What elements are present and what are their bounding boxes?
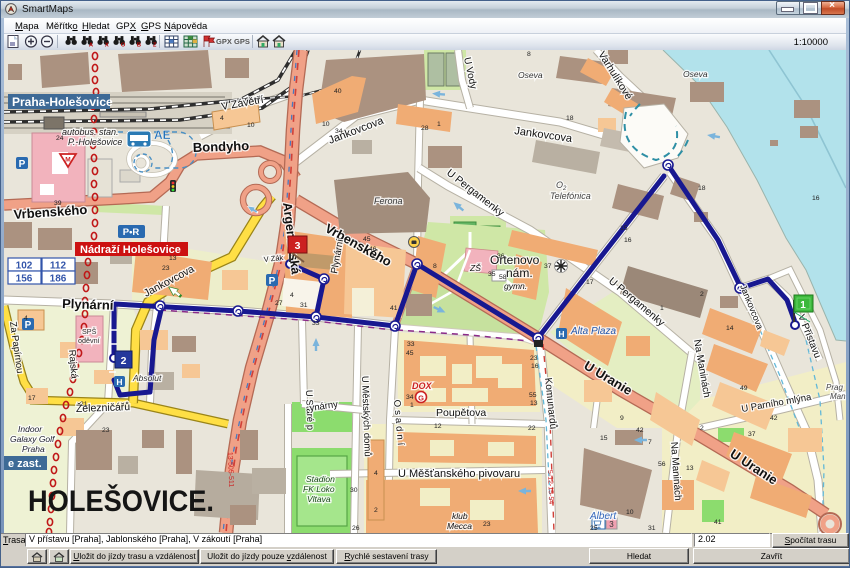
svg-text:23: 23 <box>102 427 110 434</box>
svg-text:DOX: DOX <box>412 381 433 391</box>
svg-text:4: 4 <box>24 315 28 322</box>
svg-text:2: 2 <box>374 507 378 514</box>
svg-text:SPŠ: SPŠ <box>82 327 97 336</box>
svg-text:8: 8 <box>433 263 437 270</box>
svg-text:Z: Z <box>153 43 157 49</box>
svg-text:58: 58 <box>499 274 507 281</box>
svg-text:35: 35 <box>488 271 496 278</box>
svg-text:Alta Plaza: Alta Plaza <box>570 326 616 337</box>
svg-text:Vltava: Vltava <box>307 494 331 504</box>
svg-text:18: 18 <box>566 115 574 122</box>
svg-text:P.-Holešovice: P.-Holešovice <box>68 137 122 147</box>
svg-text:nám.: nám. <box>506 266 533 280</box>
svg-text:3: 3 <box>295 240 301 252</box>
svg-text:GPS: GPS <box>234 37 250 46</box>
svg-text:Poupětova: Poupětova <box>436 407 486 419</box>
svg-text:7: 7 <box>648 439 652 446</box>
svg-text:1: 1 <box>437 121 441 128</box>
svg-text:Absolut: Absolut <box>132 373 162 383</box>
svg-text:1: 1 <box>410 402 414 409</box>
svg-text:Ferona: Ferona <box>374 196 403 206</box>
svg-text:Mecca: Mecca <box>447 521 472 531</box>
svg-text:13: 13 <box>169 255 177 262</box>
svg-text:25: 25 <box>590 525 598 532</box>
svg-text:GPX: GPX <box>216 37 232 46</box>
svg-text:Galaxy Golf: Galaxy Golf <box>10 434 56 444</box>
svg-text:H: H <box>558 329 564 339</box>
svg-text:45: 45 <box>406 350 414 357</box>
svg-text:17: 17 <box>586 279 594 286</box>
svg-text:34: 34 <box>406 394 414 401</box>
svg-text:12: 12 <box>434 423 442 430</box>
svg-text:15: 15 <box>620 225 628 232</box>
svg-text:4: 4 <box>374 470 378 477</box>
svg-text:22: 22 <box>528 425 536 432</box>
svg-text:H: H <box>116 377 122 387</box>
svg-text:31: 31 <box>300 302 308 309</box>
svg-text:10: 10 <box>322 121 330 128</box>
svg-text:Prag: Prag <box>826 383 843 392</box>
svg-text:55: 55 <box>529 392 537 399</box>
svg-text:31: 31 <box>648 525 656 532</box>
svg-text:Plynární: Plynární <box>62 296 114 313</box>
svg-text:G: G <box>418 394 424 403</box>
svg-text:autobus. stan.: autobus. stan. <box>62 127 119 137</box>
svg-text:2: 2 <box>700 425 704 432</box>
svg-text:Praha-Holešovice: Praha-Holešovice <box>12 95 113 109</box>
svg-text:56: 56 <box>658 461 666 468</box>
svg-text:17: 17 <box>28 395 36 402</box>
svg-text:Oseva: Oseva <box>518 70 543 80</box>
svg-text:34: 34 <box>335 128 343 135</box>
svg-text:4: 4 <box>220 115 224 122</box>
svg-text:Bondyho: Bondyho <box>193 138 250 155</box>
svg-text:klub: klub <box>452 511 468 521</box>
svg-text:156: 156 <box>16 274 33 285</box>
svg-text:42: 42 <box>636 427 644 434</box>
svg-text:186: 186 <box>50 274 67 285</box>
svg-text:HOLEŠOVICE.: HOLEŠOVICE. <box>28 484 214 518</box>
svg-text:41: 41 <box>714 519 722 526</box>
svg-text:41: 41 <box>390 305 398 312</box>
svg-text:4: 4 <box>290 292 294 299</box>
svg-text:AE: AE <box>154 128 171 142</box>
svg-text:e zast.: e zast. <box>8 458 42 470</box>
svg-text:13: 13 <box>530 400 538 407</box>
svg-text:30: 30 <box>350 487 358 494</box>
svg-text:10: 10 <box>247 122 255 129</box>
svg-text:A: A <box>89 43 93 49</box>
svg-text:B: B <box>137 43 141 49</box>
svg-text:Indoor: Indoor <box>18 424 43 434</box>
svg-text:gymn.: gymn. <box>504 281 527 291</box>
svg-text:M: M <box>65 157 70 164</box>
svg-text:37: 37 <box>544 263 552 270</box>
svg-text:13-505-511: 13-505-511 <box>226 452 234 488</box>
svg-text:112: 112 <box>50 261 67 272</box>
svg-text:18: 18 <box>698 185 706 192</box>
svg-text:21: 21 <box>80 401 88 408</box>
svg-text:37: 37 <box>748 431 756 438</box>
svg-text:102: 102 <box>16 261 33 272</box>
svg-text:49: 49 <box>740 385 748 392</box>
svg-text:45: 45 <box>363 236 371 243</box>
svg-text:23: 23 <box>530 355 538 362</box>
svg-text:40: 40 <box>334 88 342 95</box>
svg-text:9: 9 <box>620 415 624 422</box>
svg-text:Praha: Praha <box>22 444 45 454</box>
svg-text:5-12-15-54: 5-12-15-54 <box>546 470 554 505</box>
svg-text:23: 23 <box>162 265 170 272</box>
svg-text:P: P <box>269 276 276 287</box>
svg-text:13: 13 <box>686 465 694 472</box>
svg-text:46: 46 <box>369 246 377 253</box>
svg-text:27: 27 <box>275 300 283 307</box>
svg-text:16: 16 <box>812 195 820 202</box>
svg-text:42: 42 <box>770 415 778 422</box>
svg-text:oděvní: oděvní <box>78 336 100 345</box>
svg-text:Nádraží Holešovice: Nádraží Holešovice <box>80 244 181 256</box>
svg-text:36: 36 <box>497 253 505 260</box>
svg-text:2: 2 <box>121 355 127 367</box>
svg-text:P•R: P•R <box>123 227 140 238</box>
svg-text:8: 8 <box>527 51 531 58</box>
svg-text:Man: Man <box>830 392 846 401</box>
svg-text:FK Loko: FK Loko <box>303 484 335 494</box>
svg-text:24: 24 <box>56 135 64 142</box>
svg-text:15: 15 <box>600 435 608 442</box>
svg-text:16: 16 <box>531 363 539 370</box>
svg-text:Oseva: Oseva <box>683 69 708 79</box>
svg-text:Telefónica: Telefónica <box>550 191 591 201</box>
svg-text:P: P <box>19 159 26 170</box>
svg-text:2: 2 <box>700 291 704 298</box>
svg-text:Stadion: Stadion <box>306 474 335 484</box>
svg-text:14: 14 <box>726 325 734 332</box>
svg-text:23: 23 <box>483 521 491 528</box>
svg-text:26: 26 <box>352 525 360 532</box>
svg-text:33: 33 <box>407 341 415 348</box>
svg-text:ZŠ: ZŠ <box>469 263 481 273</box>
svg-text:X: X <box>105 43 109 49</box>
svg-text:O: O <box>121 43 126 49</box>
svg-text:U Měšťanského pivovaru: U Měšťanského pivovaru <box>398 468 520 480</box>
svg-text:28: 28 <box>421 125 429 132</box>
svg-text:5: 5 <box>372 255 376 262</box>
svg-text:10: 10 <box>626 509 634 516</box>
svg-text:1:10000: 1:10000 <box>794 37 828 48</box>
svg-text:33: 33 <box>312 320 320 327</box>
svg-text:Albert: Albert <box>589 511 617 522</box>
svg-text:1: 1 <box>800 300 806 311</box>
svg-text:39: 39 <box>54 200 62 207</box>
svg-text:1: 1 <box>660 305 664 312</box>
svg-text:16: 16 <box>624 237 632 244</box>
